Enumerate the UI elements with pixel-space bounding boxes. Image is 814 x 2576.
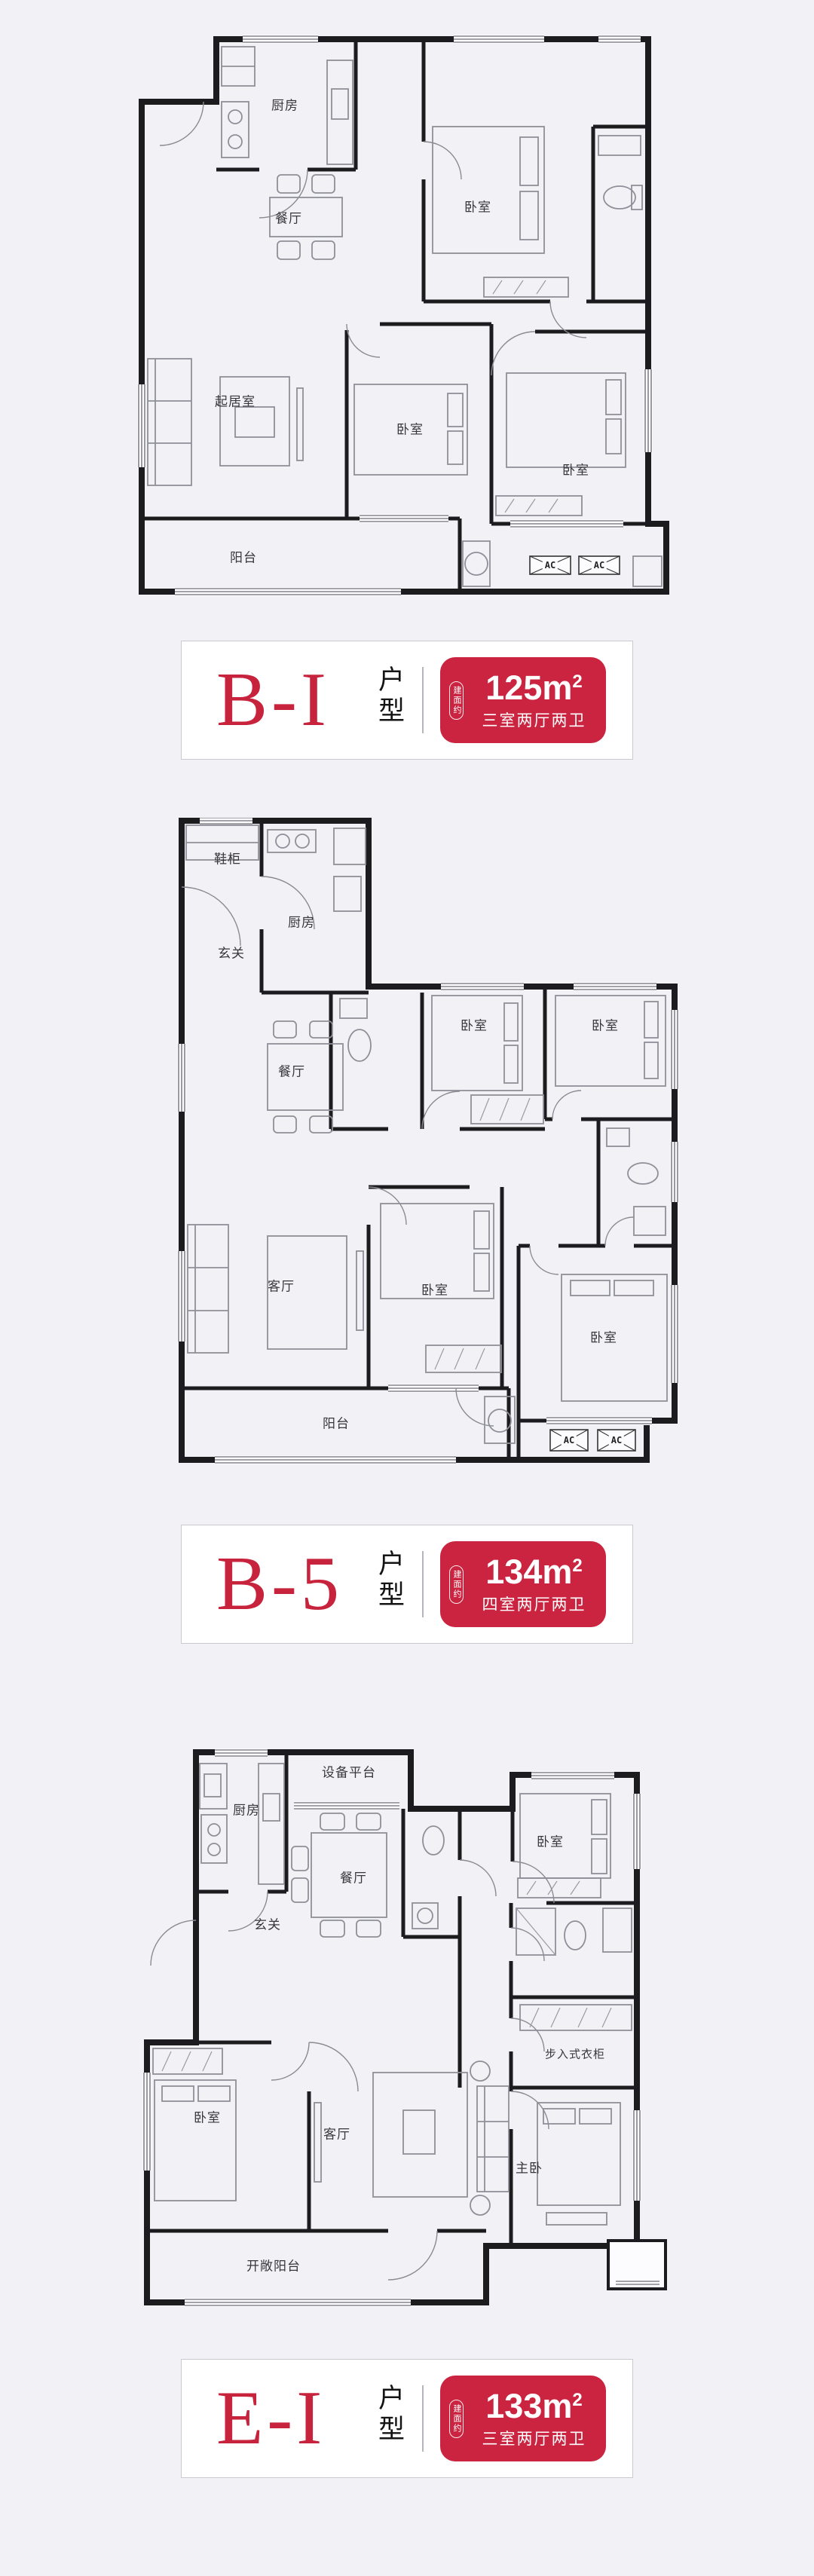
- area-number: 134m: [485, 1553, 572, 1591]
- area-badge: 建面约 125m2 三室两厅两卫: [440, 657, 606, 743]
- area-value: 134m2: [470, 1553, 598, 1591]
- room-label-bedroom-left: 卧室: [194, 2107, 221, 2126]
- room-label-livingroom: 起居室: [215, 391, 256, 410]
- floor-plan-b1-drawing: [130, 30, 687, 610]
- floor-plan-b1: 厨房 餐厅 卧室 起居室 卧室 卧室 阳台 AC AC: [130, 30, 687, 610]
- plan-type-label: 户型: [376, 665, 402, 735]
- furniture: [186, 825, 667, 1443]
- room-label-kitchen: 厨房: [233, 1800, 260, 1819]
- room-label-bedroom-b: 卧室: [592, 1015, 619, 1034]
- windows: [177, 818, 679, 1464]
- room-label-livingroom: 客厅: [323, 2124, 350, 2143]
- room-label-open-balcony: 开敞阳台: [246, 2256, 301, 2275]
- walls-outer: [147, 1752, 666, 2302]
- divider: [422, 2385, 424, 2452]
- windows: [137, 35, 653, 596]
- layout-text: 四室两厅两卫: [470, 1592, 598, 1615]
- area-info: 134m2 四室两厅两卫: [470, 1553, 598, 1616]
- room-label-entry: 玄关: [218, 943, 245, 962]
- room-label-bedroom-middle: 卧室: [396, 419, 424, 438]
- room-label-bedroom-a: 卧室: [461, 1015, 488, 1034]
- room-label-dining: 餐厅: [340, 1868, 367, 1886]
- room-label-livingroom: 客厅: [268, 1276, 295, 1295]
- room-label-kitchen: 厨房: [271, 95, 298, 114]
- floor-plan-b5: 鞋柜 厨房 玄关 餐厅 卧室 卧室 客厅 卧室 卧室 阳台 AC AC: [155, 818, 690, 1466]
- room-label-kitchen: 厨房: [288, 912, 315, 931]
- plan-b5-caption-card: B-5 户型 建面约 134m2 四室两厅两卫: [181, 1525, 633, 1644]
- plan-b1-caption-card: B-I 户型 建面约 125m2 三室两厅两卫: [181, 641, 633, 760]
- area-number: 133m: [485, 2387, 572, 2425]
- floor-plan-e1: 设备平台 厨房 餐厅 玄关 卧室 步入式衣柜 卧室 客厅 主卧 开敞阳台: [139, 1748, 667, 2321]
- door-arcs: [160, 102, 586, 375]
- area-value: 125m2: [470, 669, 598, 707]
- area-sup: 2: [572, 2390, 582, 2410]
- door-arcs: [182, 877, 634, 1426]
- divider: [422, 667, 424, 733]
- room-label-bedroom-top: 卧室: [537, 1831, 564, 1850]
- plan-name: E-I: [216, 2380, 364, 2457]
- floor-plan-b5-drawing: [155, 818, 690, 1466]
- divider: [422, 1551, 424, 1617]
- room-label-balcony: 阳台: [230, 547, 257, 566]
- room-label-shoe-cabinet: 鞋柜: [214, 849, 241, 867]
- area-info: 133m2 三室两厅两卫: [470, 2388, 598, 2450]
- plan-type-label: 户型: [376, 2384, 402, 2453]
- furniture: [148, 47, 662, 586]
- walls-inner: [142, 39, 648, 592]
- area-sup: 2: [572, 1556, 582, 1576]
- walls-outer: [182, 821, 675, 1460]
- floor-plan-e1-drawing: [139, 1748, 667, 2321]
- room-label-bedroom-right: 卧室: [562, 460, 589, 479]
- layout-text: 三室两厅两卫: [470, 708, 598, 731]
- room-label-bedroom-d: 卧室: [590, 1327, 617, 1346]
- area-value: 133m2: [470, 2388, 598, 2425]
- floorplan-page: 厨房 餐厅 卧室 起居室 卧室 卧室 阳台 AC AC B-I 户型 建面约 1…: [0, 0, 814, 2576]
- room-label-entry: 玄关: [254, 1914, 281, 1933]
- area-tag: 建面约: [449, 681, 464, 720]
- room-label-bedroom-top: 卧室: [464, 197, 491, 216]
- layout-text: 三室两厅两卫: [470, 2427, 598, 2449]
- room-label-walkin-closet: 步入式衣柜: [545, 2046, 605, 2062]
- area-info: 125m2 三室两厅两卫: [470, 669, 598, 732]
- plan-name: B-I: [216, 662, 364, 739]
- area-sup: 2: [572, 672, 582, 692]
- room-label-dining: 餐厅: [278, 1061, 305, 1080]
- room-label-bedroom-c: 卧室: [421, 1280, 448, 1299]
- room-label-equipment-platform: 设备平台: [322, 1762, 376, 1781]
- room-label-balcony: 阳台: [323, 1413, 350, 1432]
- ac-label: AC: [609, 1435, 624, 1446]
- plan-name: B-5: [216, 1546, 364, 1623]
- room-label-master-bedroom: 主卧: [516, 2158, 543, 2177]
- walls-inner: [182, 821, 675, 1460]
- area-number: 125m: [485, 668, 572, 707]
- ac-label: AC: [592, 560, 607, 571]
- walls-outer: [142, 39, 666, 592]
- area-tag: 建面约: [449, 2400, 464, 2438]
- area-tag: 建面约: [449, 1565, 464, 1604]
- ac-label: AC: [543, 560, 558, 571]
- door-arcs: [151, 1860, 554, 2280]
- plan-e1-caption-card: E-I 户型 建面约 133m2 三室两厅两卫: [181, 2359, 633, 2478]
- room-label-dining: 餐厅: [275, 208, 302, 227]
- plan-type-label: 户型: [376, 1550, 402, 1619]
- area-badge: 建面约 134m2 四室两厅两卫: [440, 1541, 606, 1627]
- ac-label: AC: [562, 1435, 577, 1446]
- area-badge: 建面约 133m2 三室两厅两卫: [440, 2376, 606, 2461]
- walls-inner: [147, 1752, 637, 2246]
